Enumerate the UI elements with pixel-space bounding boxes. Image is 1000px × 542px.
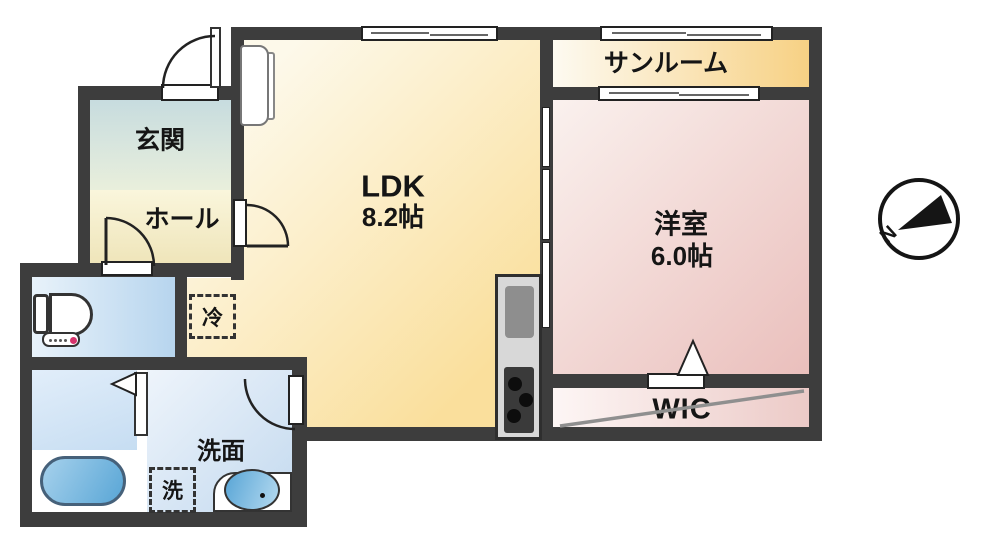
window-pane-line xyxy=(687,34,761,36)
compass-north-label: N xyxy=(876,222,901,248)
control-dot xyxy=(64,339,67,342)
room-label-genkan: 玄関 xyxy=(135,129,185,154)
floor-plan: 冷 洗 玄関 ホール LDK 8.2帖 サンルーム 洋室 6.0帖 WIC 洗面… xyxy=(0,0,1000,542)
bathroom-door-panel xyxy=(134,372,148,436)
wall-lower-bottom xyxy=(20,512,307,527)
control-dot xyxy=(49,339,52,342)
wall-bottom-right xyxy=(292,427,822,441)
window-pane-line xyxy=(612,32,686,34)
sliding-door-panel xyxy=(542,107,550,167)
toilet-control-panel xyxy=(42,332,80,347)
wall-lower-left xyxy=(20,263,32,527)
refrigerator-label: 冷 xyxy=(202,302,223,332)
hall-toilet-door-sill xyxy=(101,261,153,276)
washroom-door-sill xyxy=(288,375,304,425)
room-area-ldk: 8.2帖 xyxy=(362,204,424,230)
washer-box: 洗 xyxy=(149,467,196,513)
room-label-hall: ホール xyxy=(144,208,219,233)
stove-burner xyxy=(519,393,533,407)
bathtub-icon xyxy=(40,456,126,506)
sink-faucet-dot xyxy=(260,493,265,498)
entrance-door-arc xyxy=(163,36,215,88)
control-dot xyxy=(54,339,57,342)
room-label-washroom: 洗面 xyxy=(197,440,245,464)
compass: N xyxy=(876,180,958,258)
room-label-sunroom: サンルーム xyxy=(604,52,728,77)
toilet-tank xyxy=(33,294,49,334)
room-label-ldk: LDK xyxy=(361,171,425,202)
wic-door-sill xyxy=(647,373,705,389)
room-bathroom-floor xyxy=(32,368,137,450)
window-pane-line xyxy=(609,92,679,94)
control-dot xyxy=(59,339,62,342)
wall-mid-band xyxy=(32,357,307,370)
room-label-wic: WIC xyxy=(652,396,711,425)
wall-right xyxy=(809,27,822,441)
compass-needle xyxy=(898,195,952,230)
room-area-bedroom: 6.0帖 xyxy=(651,243,713,269)
window-pane-line xyxy=(371,32,430,34)
kitchen-unit-icon xyxy=(495,274,542,440)
stove-icon xyxy=(504,367,534,433)
toilet-bowl xyxy=(49,293,93,336)
stove-burner xyxy=(507,409,521,423)
window-sunroom-top xyxy=(600,26,773,41)
entrance-door-panel xyxy=(210,27,221,88)
window-sunroom-bottom xyxy=(598,86,760,101)
kitchen-sink-icon xyxy=(505,286,534,338)
wall-genkan-left xyxy=(78,86,90,264)
sliding-door-panel xyxy=(542,169,550,240)
compass-circle xyxy=(880,180,958,258)
storage-cabinet-icon xyxy=(240,45,269,126)
window-ldk-top xyxy=(361,26,498,41)
window-pane-line xyxy=(430,34,489,36)
hall-ldk-door-sill xyxy=(233,199,247,247)
stove-burner xyxy=(508,377,522,391)
washer-label: 洗 xyxy=(162,475,183,505)
sink-basin-icon xyxy=(224,469,280,511)
refrigerator-box: 冷 xyxy=(189,294,236,339)
sliding-door-panel xyxy=(542,242,550,328)
control-button-red xyxy=(70,337,77,344)
room-label-bedroom: 洋室 xyxy=(654,212,708,239)
window-pane-line xyxy=(679,94,749,96)
